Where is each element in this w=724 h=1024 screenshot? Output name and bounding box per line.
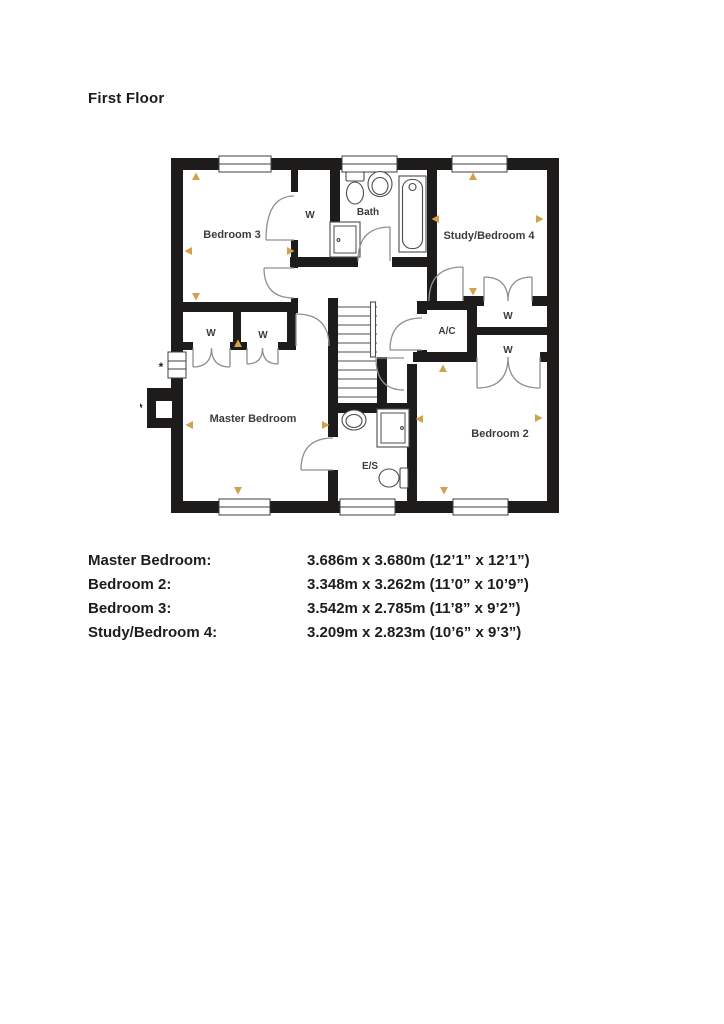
bath-door bbox=[358, 227, 390, 261]
stair-rail bbox=[371, 302, 376, 357]
room-label-bedroom3: Bedroom 3 bbox=[203, 229, 260, 241]
dimension-room: Master Bedroom: bbox=[88, 549, 307, 573]
master-wardrobe2-doors bbox=[247, 348, 278, 364]
dimension-room: Study/Bedroom 4: bbox=[88, 621, 307, 645]
room-label-bath: Bath bbox=[357, 207, 379, 218]
room-label-study-bedroom4: Study/Bedroom 4 bbox=[443, 230, 535, 242]
dimension-size: 3.348m x 3.262m (11’0” x 10’9”) bbox=[307, 576, 529, 593]
wardrobe-door-bedroom3 bbox=[266, 196, 294, 240]
dimension-size: 3.686m x 3.680m (12’1” x 12’1”) bbox=[307, 552, 530, 569]
study-wardrobe-doors bbox=[484, 277, 532, 301]
dimensions-table: Master Bedroom:3.686m x 3.680m (12’1” x … bbox=[88, 549, 530, 645]
room-label-master-bedroom: Master Bedroom bbox=[210, 413, 297, 425]
ensuite-toilet-tank bbox=[400, 468, 408, 488]
bedroom3-door bbox=[264, 268, 294, 298]
footnote-mark-double: ** bbox=[140, 401, 143, 415]
room-label-bedroom2: Bedroom 2 bbox=[471, 428, 528, 440]
wardrobe-label-3: W bbox=[503, 345, 513, 356]
dimension-row: Study/Bedroom 4:3.209m x 2.823m (10’6” x… bbox=[88, 621, 530, 645]
ensuite-door bbox=[301, 438, 333, 470]
dimension-row: Bedroom 2:3.348m x 3.262m (11’0” x 10’9”… bbox=[88, 573, 530, 597]
wardrobe-label-2: W bbox=[503, 311, 513, 322]
page-title: First Floor bbox=[88, 90, 164, 107]
ensuite-shower bbox=[377, 409, 409, 447]
side-window bbox=[168, 352, 186, 378]
ac-door bbox=[390, 318, 422, 350]
dimension-room: Bedroom 3: bbox=[88, 597, 307, 621]
stairs bbox=[338, 302, 377, 397]
wardrobe-label-4: W bbox=[206, 328, 216, 339]
ensuite-fixtures bbox=[342, 409, 409, 488]
footnote-mark-single: * bbox=[159, 360, 164, 374]
master-door bbox=[296, 314, 329, 346]
bath-toilet-tank bbox=[346, 172, 364, 181]
bedroom2-wardrobe-doors bbox=[477, 357, 540, 388]
bath-toilet-bowl bbox=[347, 182, 364, 204]
dimension-size: 3.542m x 2.785m (11’8” x 9’2”) bbox=[307, 600, 520, 617]
dimension-room: Bedroom 2: bbox=[88, 573, 307, 597]
dimension-row: Bedroom 3:3.542m x 2.785m (11’8” x 9’2”) bbox=[88, 597, 530, 621]
room-label-ensuite: E/S bbox=[362, 461, 378, 472]
wardrobe-label-5: W bbox=[258, 330, 268, 341]
room-label-ac: A/C bbox=[438, 326, 455, 337]
wardrobe-label-1: W bbox=[305, 210, 315, 221]
ensuite-toilet-bowl bbox=[379, 469, 399, 487]
dimension-row: Master Bedroom:3.686m x 3.680m (12’1” x … bbox=[88, 549, 530, 573]
floor-plan-svg: Bedroom 3 Bath Study/Bedroom 4 A/C W W W… bbox=[140, 140, 570, 530]
dimension-size: 3.209m x 2.823m (10’6” x 9’3”) bbox=[307, 624, 521, 641]
master-wardrobe1-doors bbox=[193, 348, 230, 367]
floor-plan: Bedroom 3 Bath Study/Bedroom 4 A/C W W W… bbox=[140, 140, 570, 530]
